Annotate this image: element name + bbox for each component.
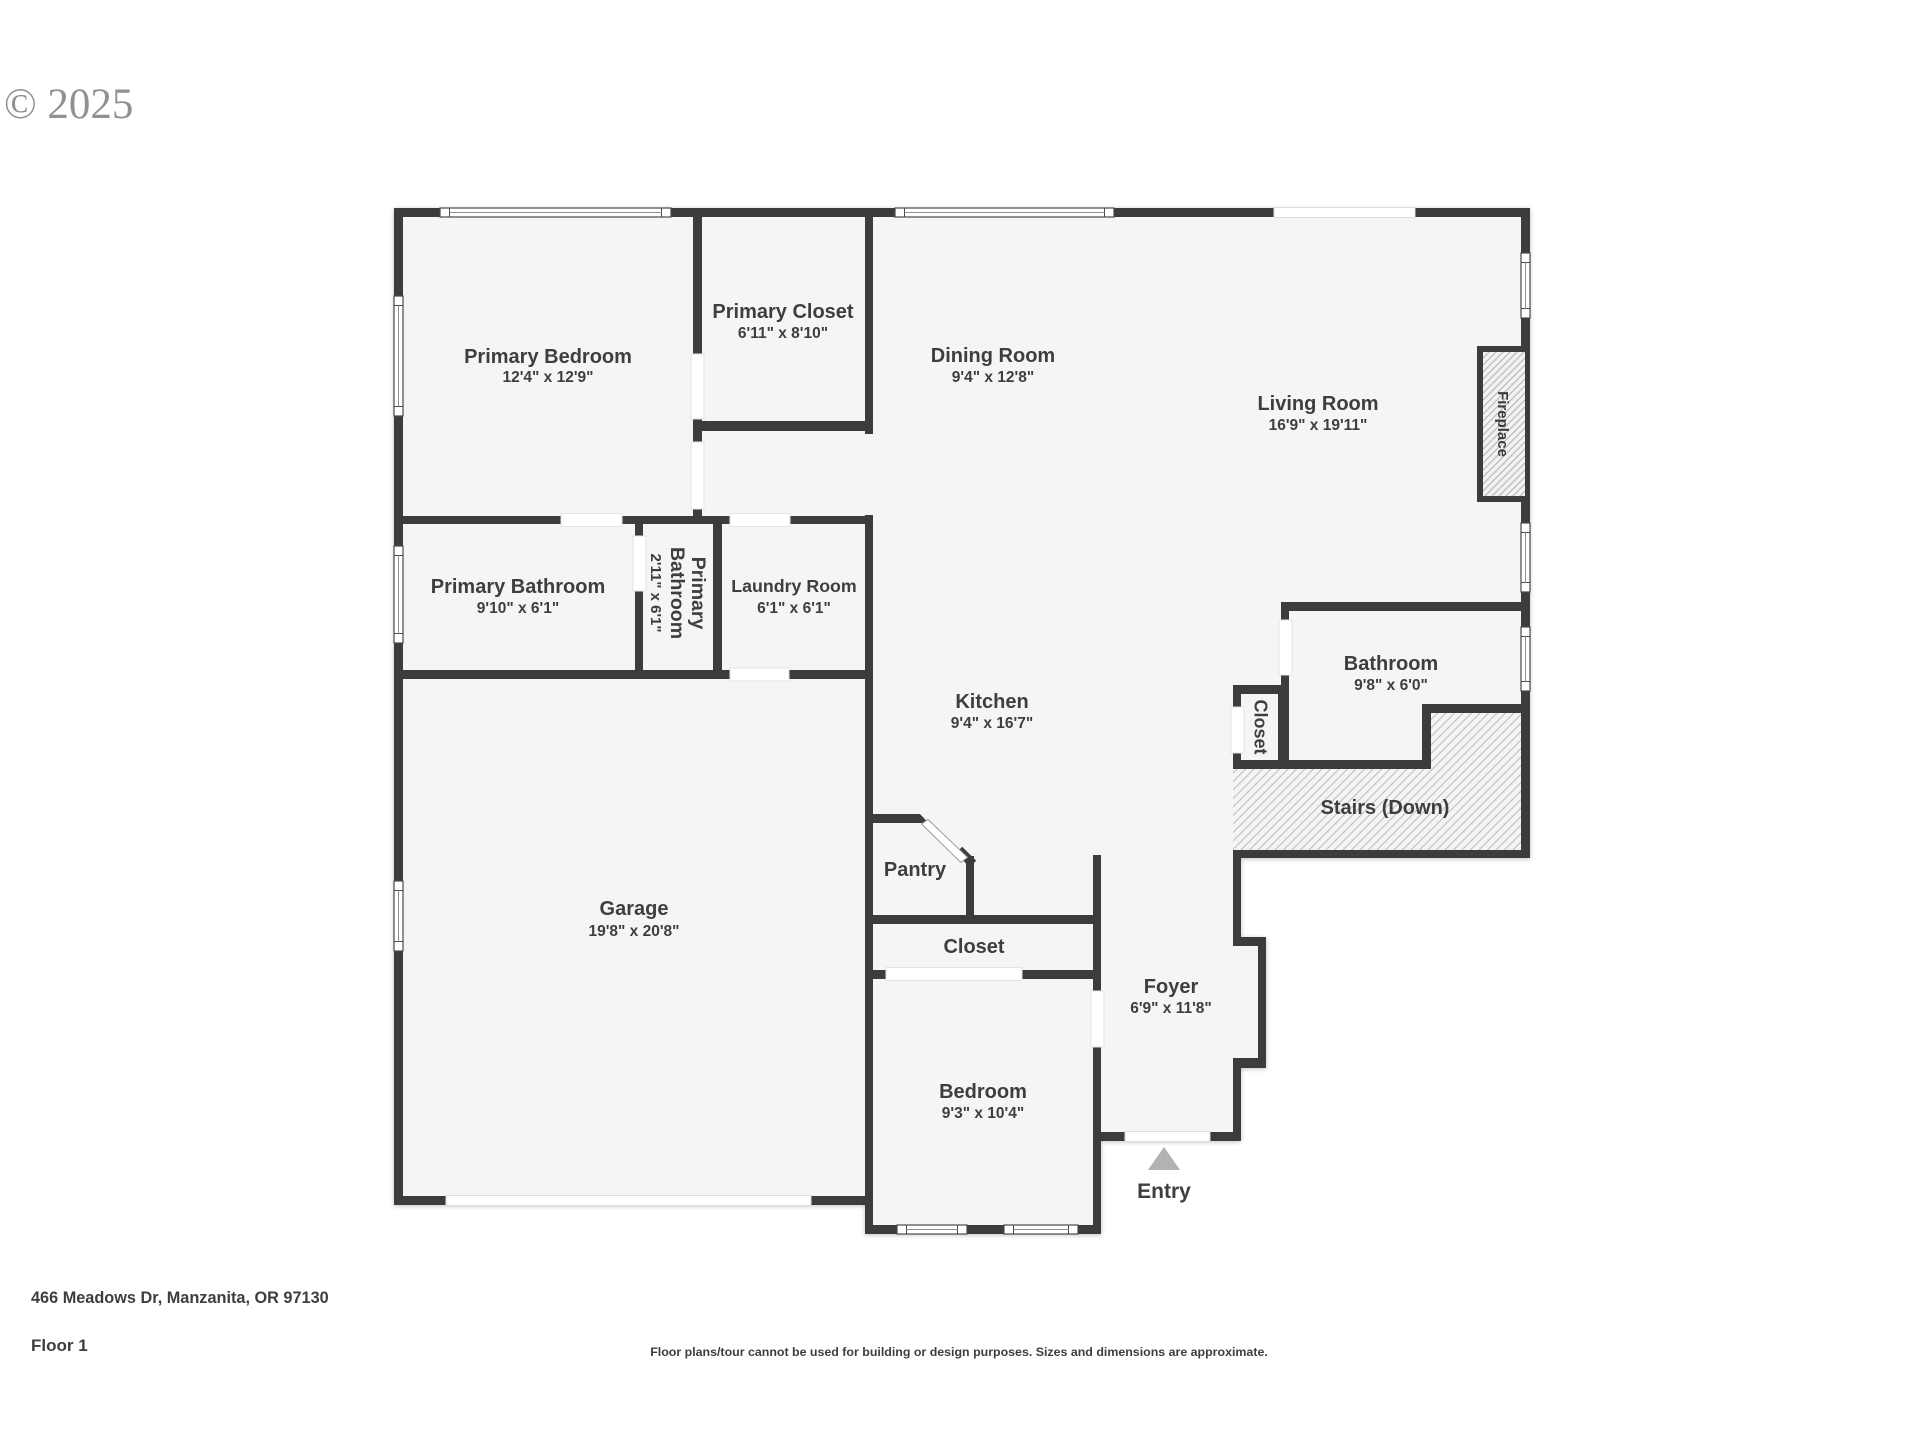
svg-text:6'9" x 11'8": 6'9" x 11'8" (1130, 1000, 1212, 1017)
svg-text:9'3" x 10'4": 9'3" x 10'4" (942, 1105, 1024, 1122)
svg-text:9'4" x 16'7": 9'4" x 16'7" (951, 715, 1033, 732)
svg-text:Primary Bedroom: Primary Bedroom (464, 346, 632, 368)
svg-text:12'4" x 12'9": 12'4" x 12'9" (502, 369, 593, 386)
svg-text:Entry: Entry (1137, 1180, 1191, 1203)
svg-text:Floor plans/tour cannot be use: Floor plans/tour cannot be used for buil… (650, 1345, 1268, 1359)
svg-text:© 2025: © 2025 (4, 81, 133, 128)
svg-text:Garage: Garage (600, 898, 669, 920)
svg-text:19'8" x 20'8": 19'8" x 20'8" (588, 923, 679, 940)
svg-text:Stairs (Down): Stairs (Down) (1321, 797, 1450, 819)
svg-text:Bathroom: Bathroom (1344, 653, 1438, 675)
svg-text:2'11" x 6'1": 2'11" x 6'1" (647, 554, 664, 633)
svg-text:Foyer: Foyer (1144, 976, 1199, 998)
svg-text:Primary Bathroom: Primary Bathroom (431, 576, 606, 598)
svg-text:Primary Closet: Primary Closet (712, 301, 854, 323)
svg-text:Laundry Room: Laundry Room (731, 576, 856, 596)
svg-text:Floor 1: Floor 1 (31, 1336, 88, 1355)
svg-text:Bedroom: Bedroom (939, 1081, 1027, 1103)
svg-text:6'1" x 6'1": 6'1" x 6'1" (757, 600, 831, 617)
svg-text:Fireplace: Fireplace (1494, 391, 1511, 457)
svg-text:Bathroom: Bathroom (666, 547, 688, 639)
svg-text:Closet: Closet (1251, 699, 1271, 754)
svg-text:Primary: Primary (687, 557, 709, 630)
svg-text:Pantry: Pantry (884, 859, 947, 881)
svg-text:466 Meadows Dr, Manzanita, OR: 466 Meadows Dr, Manzanita, OR 97130 (31, 1289, 329, 1307)
svg-text:9'4" x 12'8": 9'4" x 12'8" (952, 369, 1034, 386)
svg-text:9'10" x 6'1": 9'10" x 6'1" (477, 600, 559, 617)
svg-text:6'11" x 8'10": 6'11" x 8'10" (738, 325, 828, 342)
svg-text:Closet: Closet (943, 936, 1004, 958)
svg-text:Living Room: Living Room (1257, 393, 1378, 415)
svg-text:Dining Room: Dining Room (931, 345, 1055, 367)
svg-text:16'9" x 19'11": 16'9" x 19'11" (1269, 417, 1368, 434)
svg-text:Kitchen: Kitchen (955, 691, 1028, 713)
svg-text:9'8" x 6'0": 9'8" x 6'0" (1354, 677, 1428, 694)
